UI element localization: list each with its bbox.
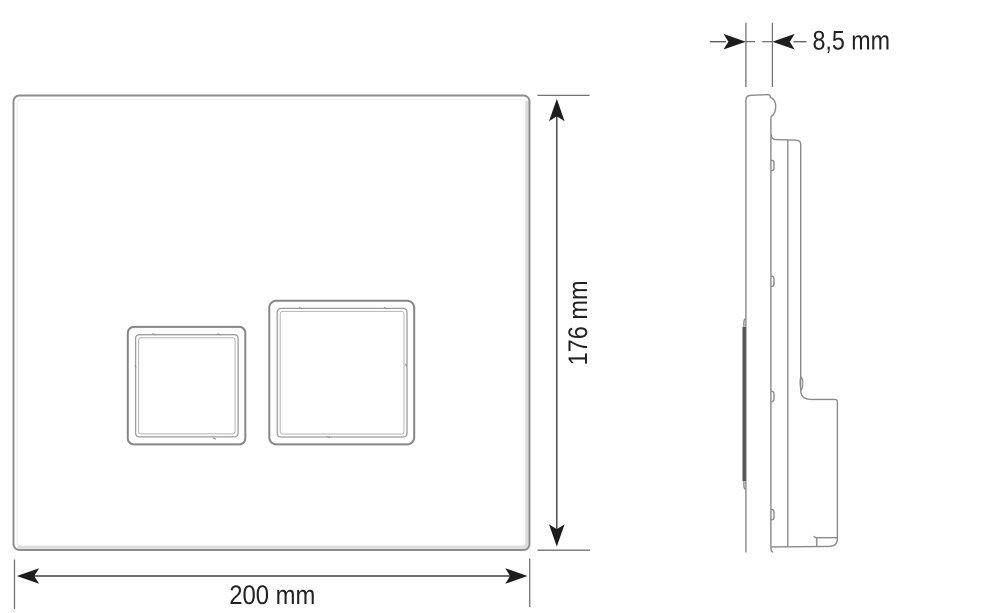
svg-text:176 mm: 176 mm <box>563 280 593 365</box>
svg-text:8,5 mm: 8,5 mm <box>813 26 891 56</box>
svg-text:200 mm: 200 mm <box>229 580 315 610</box>
